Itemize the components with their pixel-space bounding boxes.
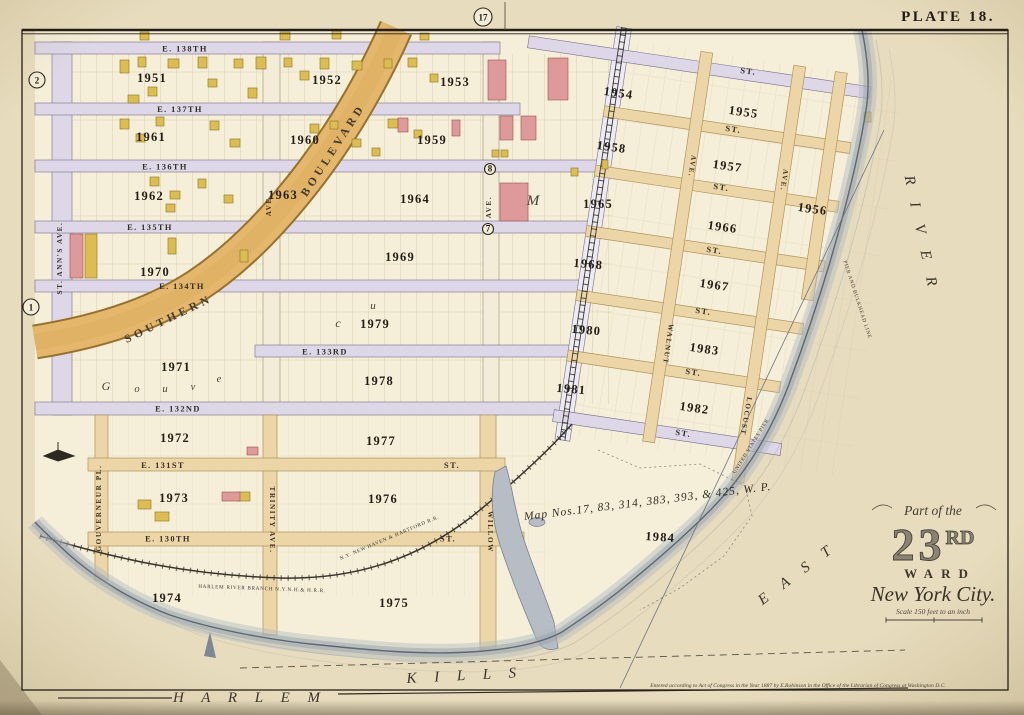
vignette <box>0 0 1024 715</box>
atlas-sheet: E. 138THE. 137THE. 136THE. 135THE. 134TH… <box>0 0 1024 715</box>
bottom-shadow <box>0 700 1024 715</box>
map-canvas: E. 138THE. 137THE. 136THE. 135THE. 134TH… <box>0 0 1024 715</box>
plate-label: PLATE 18. <box>901 9 995 25</box>
